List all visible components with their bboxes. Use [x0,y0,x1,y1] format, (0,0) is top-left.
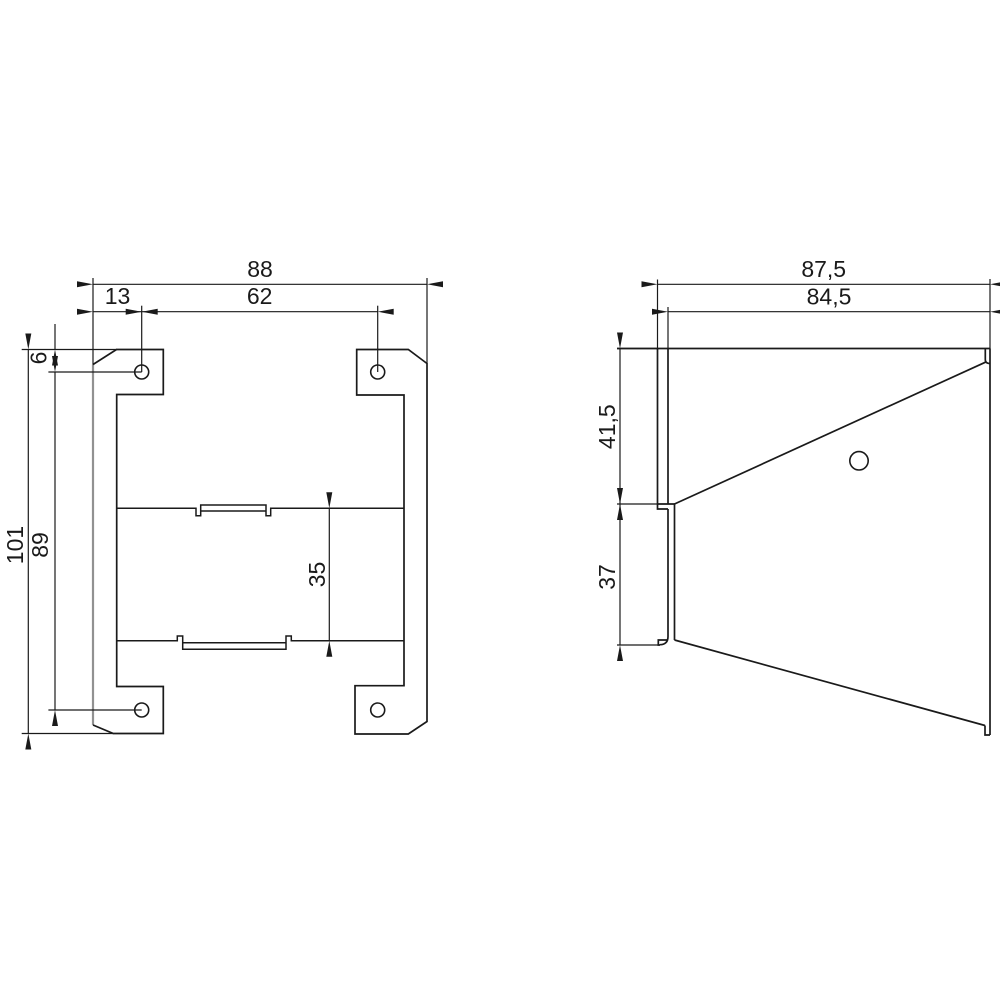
dim-label-overall-height: 101 [2,526,28,564]
dim-label-lower-height: 37 [594,564,620,590]
dim-label-hole-spacing-x: 62 [247,283,273,309]
side-hole [850,452,868,470]
front-outline-right-half [355,350,427,735]
dim-label-overall-depth: 87,5 [801,256,846,282]
side-lower-diagonal [675,640,986,726]
technical-drawing-canvas: 88 13 62 101 89 6 35 [0,0,1000,1000]
drawing-stage: 88 13 62 101 89 6 35 [0,0,1000,1000]
front-hole-bottom-right [371,703,385,717]
side-dimension-lines [620,284,990,645]
side-outline [617,349,990,736]
side-upper-diagonal [675,362,987,504]
dim-label-upper-height: 41,5 [594,404,620,449]
side-plate-outer-lower [660,509,668,645]
front-outline-left-half [93,350,163,734]
dim-label-hole-spacing-y: 89 [27,532,53,558]
dim-label-inner-depth: 84,5 [807,284,852,310]
side-view: 87,5 84,5 41,5 37 [594,256,990,735]
dim-label-hole-left-offset: 13 [105,283,131,309]
side-plate-outer-upper [658,349,669,510]
front-view: 88 13 62 101 89 6 35 [2,256,427,734]
dim-label-overall-width: 88 [247,256,273,282]
dim-label-hole-top-offset: 6 [26,352,52,365]
side-extension-lines [617,279,990,645]
dim-label-rail-section-height: 35 [304,562,330,588]
